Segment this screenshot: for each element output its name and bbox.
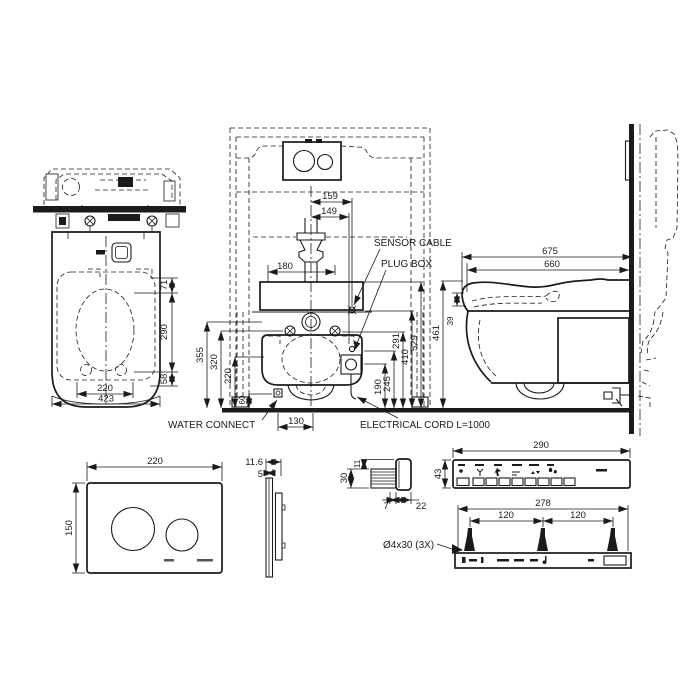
remote-control-buttons xyxy=(457,478,575,486)
dim-320: 320 xyxy=(209,354,220,370)
dim-423: 423 xyxy=(98,394,114,405)
dim-120-right: 120 xyxy=(570,510,586,521)
side-view: 675 660 461 39 xyxy=(431,124,678,436)
brand-mark xyxy=(164,559,174,562)
dim-290-remote: 290 xyxy=(533,440,549,451)
dim-5: 5 xyxy=(258,469,263,480)
dim-220-plate: 220 xyxy=(147,456,163,467)
water-connect-label: WATER CONNECT xyxy=(168,420,255,431)
remote-side-view: 30 11 7 22 xyxy=(339,459,426,512)
dim-245: 245 xyxy=(382,376,393,392)
top-view: 71 290 58 220 423 xyxy=(33,169,186,407)
dim-43: 43 xyxy=(433,469,444,480)
dim-159: 159 xyxy=(322,191,338,202)
plug-box-label: PLUG BOX xyxy=(381,259,432,270)
dim-130: 130 xyxy=(288,416,304,427)
dim-71: 71 xyxy=(159,280,170,291)
dim-58: 58 xyxy=(159,374,170,385)
dim-461: 461 xyxy=(431,325,442,341)
dim-7: 7 xyxy=(383,501,388,512)
dim-220-top-view: 220 xyxy=(97,383,113,394)
dim-660: 660 xyxy=(544,259,560,270)
dim-11-6: 11.6 xyxy=(245,457,263,468)
dim-149: 149 xyxy=(321,206,337,217)
dim-355: 355 xyxy=(195,347,206,363)
dim-30: 30 xyxy=(339,473,350,484)
dim-39: 39 xyxy=(446,316,455,325)
dim-290: 290 xyxy=(159,324,170,340)
dim-22: 22 xyxy=(416,501,427,512)
screw-spec-label: Ø4x30 (3X) xyxy=(383,540,434,551)
dim-529: 529 xyxy=(409,335,420,351)
dim-11-remote: 11 xyxy=(353,459,362,468)
floor-line xyxy=(222,408,634,413)
installation-drawing: 71 290 58 220 423 xyxy=(0,0,700,700)
dim-150: 150 xyxy=(64,520,75,536)
remote-control-icons xyxy=(458,464,607,476)
dim-180: 180 xyxy=(277,261,293,272)
sensor-cable-label: SENSOR CABLE xyxy=(374,238,452,249)
flush-plate-side-view: 11.6 5 xyxy=(245,457,285,577)
dim-220-front: 220 xyxy=(223,368,234,384)
screws xyxy=(464,528,618,551)
dim-291: 291 xyxy=(391,333,402,349)
front-view: 159 149 180 355 320 220 60 190 245 291 4… xyxy=(168,128,490,431)
bracket-detail-marks xyxy=(462,556,626,565)
electrical-cord-label: ELECTRICAL CORD L=1000 xyxy=(360,420,490,431)
dim-120-left: 120 xyxy=(498,510,514,521)
dim-278: 278 xyxy=(535,498,551,509)
technical-drawing-page: 71 290 58 220 423 xyxy=(0,0,700,700)
dim-675: 675 xyxy=(542,246,558,257)
remote-front-view: 290 43 xyxy=(433,440,630,488)
dim-60: 60 xyxy=(238,395,247,404)
brand-mark xyxy=(197,559,213,562)
flush-plate-front-view: 220 150 xyxy=(64,456,222,573)
